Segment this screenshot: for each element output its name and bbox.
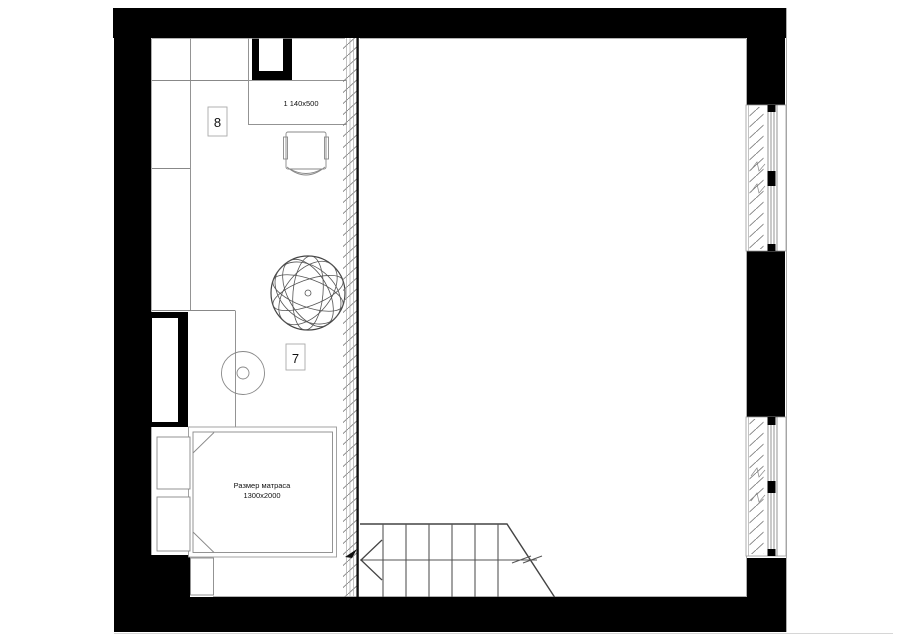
desk-dimension-label: 1 140x500 <box>283 99 318 108</box>
nightstand-lower <box>157 497 190 551</box>
floor-plan-drawing: 1 140x500 Размер матраса 1300x2000 <box>0 0 900 636</box>
partition-wall <box>343 38 358 597</box>
svg-text:8: 8 <box>214 115 221 130</box>
wall-top <box>113 8 786 38</box>
desk-chair <box>284 132 329 175</box>
stairs <box>360 524 555 597</box>
stool <box>222 352 265 395</box>
nightstand-upper <box>157 437 190 489</box>
wall-left <box>114 8 151 558</box>
room-label-7: 7 <box>286 344 305 370</box>
left-wall-niche <box>148 312 188 427</box>
wall-right-top-column <box>747 8 785 105</box>
svg-text:7: 7 <box>292 351 299 366</box>
wall-right-pier <box>747 251 785 417</box>
bed: Размер матраса 1300x2000 <box>189 427 337 557</box>
hanging-chair <box>263 249 353 336</box>
top-wall-niche <box>252 38 292 80</box>
mattress-caption-line1: Размер матраса <box>234 481 292 490</box>
window-2 <box>746 417 786 556</box>
wall-right-bottom-column <box>747 558 786 632</box>
wall-bottom <box>114 597 786 632</box>
floor-plan-canvas: 1 140x500 Размер матраса 1300x2000 <box>0 0 900 636</box>
bed-step <box>191 558 214 595</box>
room-label-8: 8 <box>208 107 227 136</box>
mattress-caption-line2: 1300x2000 <box>243 491 280 500</box>
window-1 <box>746 105 786 251</box>
